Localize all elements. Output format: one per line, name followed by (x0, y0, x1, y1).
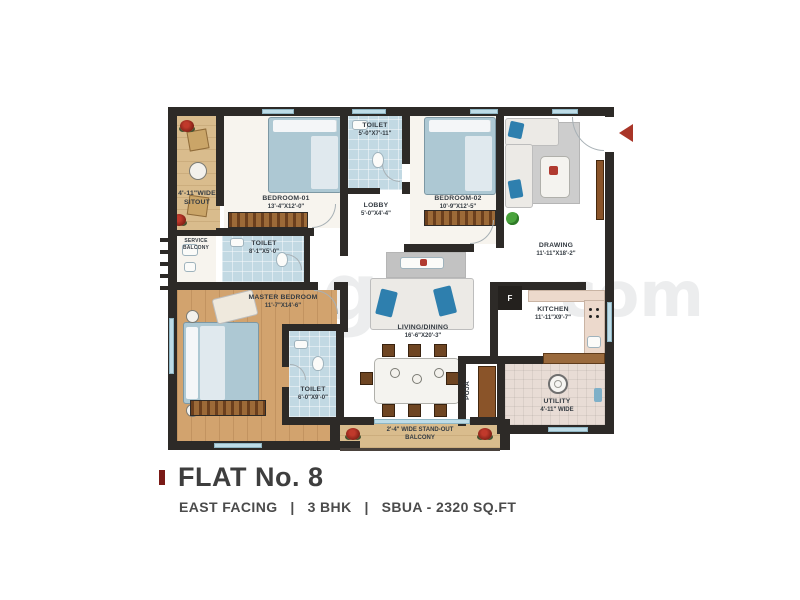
window (470, 109, 498, 114)
wall (346, 188, 380, 194)
coffee-table (540, 156, 570, 198)
puja-label: PUJA (464, 368, 473, 414)
lobby-label: LOBBY 5'-0"X4'-4" (344, 202, 408, 219)
flat-subtitle: EAST FACING | 3 BHK | SBUA - 2320 SQ.FT (179, 499, 516, 515)
kitchen-sink (587, 336, 601, 348)
drawing-label: DRAWING 11'-11"X18'-2" (520, 242, 592, 259)
bed (268, 117, 342, 193)
sofa (505, 144, 533, 208)
living-dining-label: LIVING/DINING 16'-6"X20'-3" (378, 324, 468, 341)
dinner-plate (390, 368, 400, 378)
flat-title: FLAT No. 8 (178, 462, 323, 493)
window (262, 109, 294, 114)
nightstand (186, 310, 199, 323)
hob-icon (589, 308, 592, 311)
bedroom01-label: BEDROOM-01 13'-4"X12'-0" (238, 195, 334, 212)
sitout-table (189, 162, 207, 180)
utility-fixture (184, 262, 196, 272)
wall (404, 244, 474, 252)
fridge-label: F (508, 294, 513, 303)
tv-decor (420, 259, 427, 266)
wall (605, 107, 614, 117)
wall (605, 152, 614, 434)
window (607, 302, 612, 342)
washing-machine-icon (548, 374, 568, 394)
master-bedroom-label: MASTER BEDROOM 11'-7"X14'-6" (230, 294, 336, 311)
balcony-rim (340, 448, 500, 451)
wall (402, 182, 410, 194)
dining-chair (382, 344, 395, 357)
bed (424, 117, 496, 195)
window (552, 109, 578, 114)
wall (490, 282, 498, 364)
dining-chair (434, 344, 447, 357)
flower-pot-icon (180, 120, 194, 132)
window (548, 427, 588, 432)
dining-chair (382, 404, 395, 417)
wall (282, 331, 289, 367)
wall (168, 107, 614, 116)
wardrobe (228, 212, 308, 228)
floor-plan-page: g com (0, 0, 800, 600)
utility-label: UTILITY 4'-11" WIDE (524, 398, 590, 415)
kitchen-platform (543, 353, 605, 364)
utility-mat (594, 388, 602, 402)
wall (344, 417, 374, 425)
window (214, 443, 262, 448)
wall (216, 228, 314, 236)
dining-chair (360, 372, 373, 385)
bedroom02-label: BEDROOM-02 10'-9"X12'-5" (414, 195, 502, 212)
dinner-plate (434, 368, 444, 378)
wc (312, 356, 324, 371)
bed (183, 322, 259, 404)
wall (470, 417, 500, 425)
plant-icon (506, 212, 519, 225)
dining-chair (408, 344, 421, 357)
window (374, 419, 470, 424)
toilet-bottom-label: TOILET 6'-0"X9'-0" (291, 386, 335, 403)
red-accent-mark (159, 470, 165, 485)
wall (458, 356, 498, 364)
dinner-plate (412, 374, 422, 384)
dining-chair (408, 404, 421, 417)
sitout-chair (186, 128, 209, 151)
wall (500, 419, 510, 450)
washbasin (294, 340, 308, 349)
entry-cabinet (596, 160, 604, 220)
puja-cabinet (478, 366, 496, 422)
wall (282, 324, 342, 331)
dining-chair (434, 404, 447, 417)
kitchen-label: KITCHEN 11'-11"X9'-7" (522, 306, 584, 323)
wall (176, 230, 218, 236)
utility-floor (505, 364, 605, 425)
service-balcony-label: SERVICE BALCONY (174, 238, 218, 251)
wall (330, 419, 340, 450)
wall (336, 324, 344, 425)
fridge-box: F (498, 286, 522, 310)
balcony-label: 2'-4" WIDE STAND-OUT BALCONY (352, 427, 488, 443)
wall (168, 282, 318, 290)
table-decor (549, 166, 558, 175)
wall (168, 107, 177, 450)
wall (496, 107, 504, 248)
wall (304, 234, 310, 282)
wardrobe (190, 400, 266, 416)
toilet-mid-label: TOILET 8'-1"X5'-0" (234, 240, 294, 257)
window (169, 318, 174, 374)
wall (497, 356, 543, 364)
window (352, 109, 386, 114)
entrance-arrow-icon (619, 124, 633, 142)
sitout-label: 4'-11"WIDE SITOUT (170, 190, 224, 208)
toilet-top-label: TOILET 5'-0"X7'-11" (345, 122, 405, 139)
